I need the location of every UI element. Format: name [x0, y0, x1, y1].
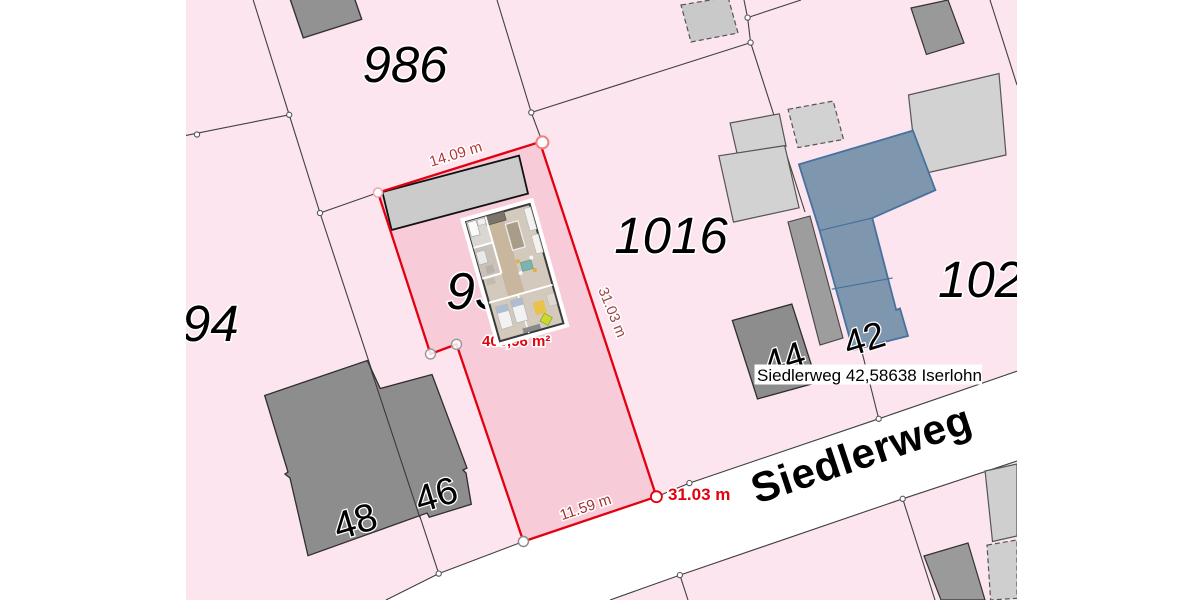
- svg-text:94: 94: [182, 295, 239, 352]
- svg-text:Siedlerweg 42,58638 Iserlohn: Siedlerweg 42,58638 Iserlohn: [757, 366, 982, 385]
- svg-text:1021: 1021: [938, 251, 1051, 308]
- svg-text:986: 986: [362, 36, 448, 93]
- svg-text:31.03 m: 31.03 m: [668, 485, 730, 504]
- svg-text:1016: 1016: [614, 207, 728, 264]
